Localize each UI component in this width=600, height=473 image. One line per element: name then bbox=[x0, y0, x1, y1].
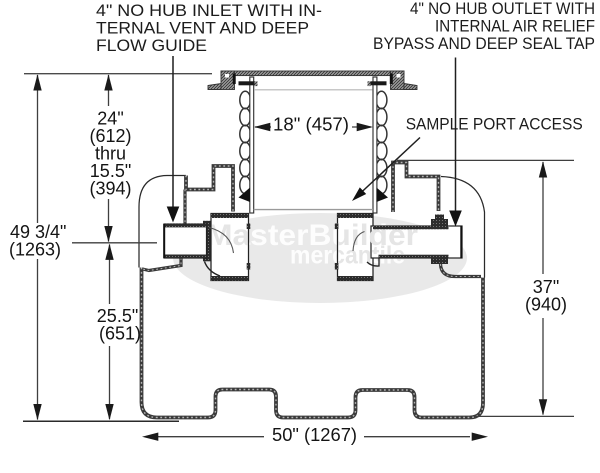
svg-text:(651): (651) bbox=[99, 324, 141, 344]
svg-text:SAMPLE PORT ACCESS: SAMPLE PORT ACCESS bbox=[406, 115, 583, 134]
svg-text:FLOW GUIDE: FLOW GUIDE bbox=[96, 36, 207, 55]
svg-text:18" (457): 18" (457) bbox=[273, 115, 349, 135]
svg-text:(940): (940) bbox=[525, 295, 567, 315]
svg-text:4" NO HUB OUTLET WITH: 4" NO HUB OUTLET WITH bbox=[410, 0, 595, 18]
svg-text:(1263): (1263) bbox=[9, 240, 61, 260]
svg-text:4" NO HUB INLET WITH IN-: 4" NO HUB INLET WITH IN- bbox=[96, 1, 322, 20]
svg-text:BYPASS AND DEEP SEAL TAP: BYPASS AND DEEP SEAL TAP bbox=[373, 34, 595, 53]
svg-text:(394): (394) bbox=[90, 179, 132, 199]
svg-text:TERNAL VENT AND DEEP: TERNAL VENT AND DEEP bbox=[96, 19, 309, 38]
svg-text:INTERNAL AIR RELIEF: INTERNAL AIR RELIEF bbox=[435, 17, 595, 36]
svg-text:50" (1267): 50" (1267) bbox=[272, 425, 357, 445]
